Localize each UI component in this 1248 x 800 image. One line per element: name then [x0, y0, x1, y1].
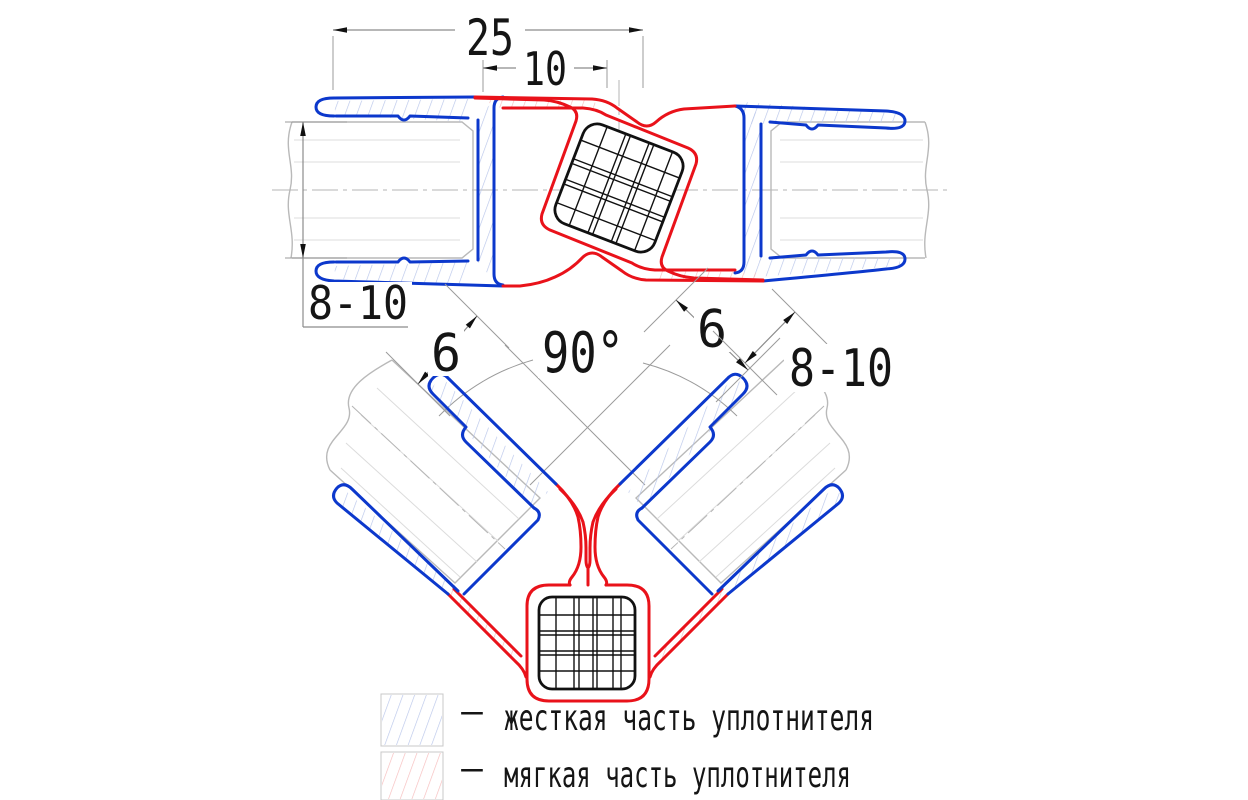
dim-angle: 90° — [538, 321, 630, 386]
rigid-profile-corner-view — [334, 374, 843, 594]
legend-row-rigid: – жесткая часть уплотнителя — [381, 691, 874, 746]
legend-swatch-soft-hatch — [382, 753, 442, 799]
dim-angle-label: 90° — [542, 321, 624, 386]
glass-corner-left-break — [327, 360, 392, 470]
hatch-corner-right-lower-lip — [719, 486, 843, 596]
left-pocket-wall — [494, 97, 503, 285]
dim-total-width: 25 — [333, 9, 643, 90]
legend: – жесткая часть уплотнителя – мягкая час… — [381, 691, 874, 800]
magnetic-seal-technical-drawing: 25 10 8-10 — [0, 0, 1248, 800]
hatch-left-channel — [478, 102, 494, 281]
right-soft-diagonal-inner — [655, 589, 722, 656]
hatch-corner-right-upper-lip — [628, 376, 746, 508]
dim-6-right-label: 6 — [697, 300, 727, 360]
dim-6-left-label: 6 — [431, 324, 461, 384]
top-profile-view: 25 10 8-10 — [272, 9, 952, 330]
legend-swatch-rigid-hatch — [382, 695, 442, 745]
legend-label-soft: мягкая часть уплотнителя — [504, 755, 851, 796]
dim-8-10-top-label: 8-10 — [308, 276, 408, 330]
hatch-corner-right-soft — [655, 589, 728, 661]
glass-corner-left-lines — [341, 388, 519, 577]
stem-right-inner-wall — [588, 489, 616, 568]
hatch-right-channel — [744, 104, 761, 278]
left-soft-diagonal-outer — [448, 594, 526, 677]
dim-10-label: 10 — [523, 42, 567, 96]
hatch-corner-left-lower-lip — [333, 486, 457, 596]
dim-glass-thickness-top: 8-10 — [285, 122, 412, 330]
drawing-canvas: 25 10 8-10 — [0, 0, 1248, 800]
glass-corner-right-lines — [657, 388, 835, 577]
legend-dash-rigid: – — [461, 691, 483, 732]
legend-row-soft: – мягкая часть уплотнителя — [381, 748, 851, 800]
hatch-corner-left-soft — [448, 589, 521, 661]
legend-label-rigid: жесткая часть уплотнителя — [504, 698, 874, 739]
legend-dash-soft: – — [461, 748, 483, 789]
hatch-top-right-lip — [744, 102, 900, 124]
magnet-cross-section-corner — [539, 597, 635, 689]
stem-left-inner-wall — [560, 489, 588, 568]
dim-25-label: 25 — [466, 9, 514, 67]
corner-profile-view: 6 90° 6 8-10 — [327, 268, 900, 701]
hatch-corner-left-upper-lip — [430, 376, 548, 508]
dim-8-10-right-label: 8-10 — [789, 339, 893, 399]
right-soft-diagonal-outer — [650, 594, 728, 677]
dim-glass-thickness-corner: 8-10 — [713, 289, 900, 399]
left-soft-diagonal-inner — [454, 589, 521, 656]
